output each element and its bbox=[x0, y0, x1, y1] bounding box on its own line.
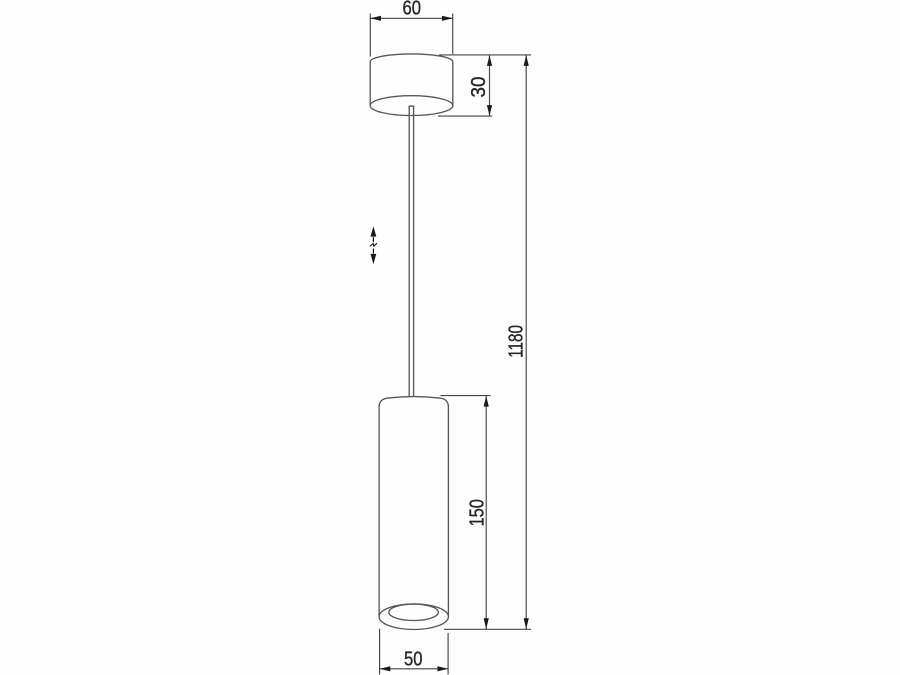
svg-text:30: 30 bbox=[468, 76, 491, 97]
svg-text:50: 50 bbox=[404, 647, 422, 670]
svg-text:1180: 1180 bbox=[505, 325, 527, 358]
svg-text:60: 60 bbox=[403, 0, 421, 19]
svg-text:150: 150 bbox=[465, 499, 488, 526]
